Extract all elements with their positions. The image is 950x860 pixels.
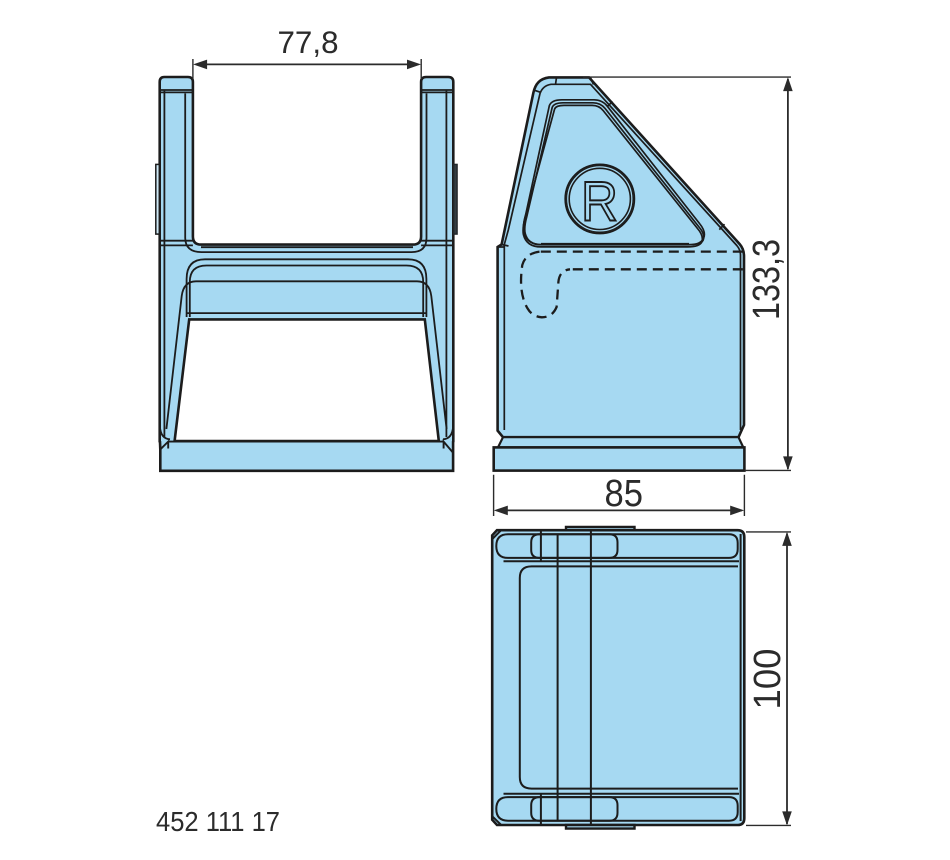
svg-text:100: 100: [747, 649, 789, 710]
svg-text:452 111 17: 452 111 17: [156, 806, 280, 837]
svg-text:R: R: [581, 170, 618, 233]
svg-text:77,8: 77,8: [278, 24, 339, 60]
svg-text:133,3: 133,3: [746, 239, 788, 320]
svg-text:85: 85: [605, 473, 644, 515]
